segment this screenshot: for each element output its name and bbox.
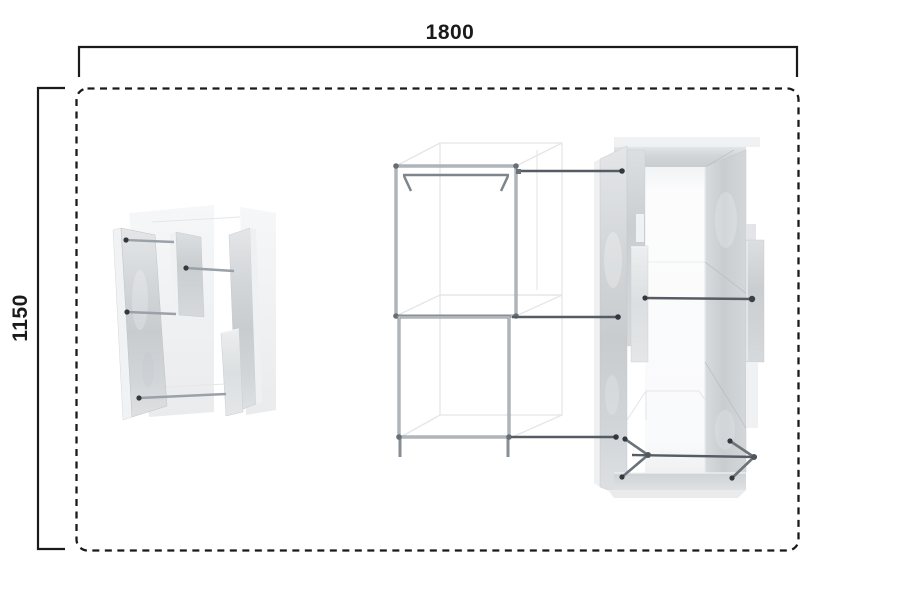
texture-highlight	[132, 270, 148, 330]
width-dimension-bracket	[79, 47, 797, 77]
texture-shade	[142, 352, 154, 388]
corner-panel-unit	[113, 205, 276, 420]
width-dimension-label: 1800	[426, 21, 475, 44]
height-dimension-bracket	[38, 88, 65, 549]
texture-highlight	[715, 410, 735, 450]
texture-highlight	[605, 375, 619, 415]
texture-highlight	[604, 232, 622, 288]
bottom-panel-front	[608, 490, 746, 498]
clothes-rack-frame	[393, 143, 625, 457]
rail-brace	[501, 176, 508, 191]
side-step	[746, 240, 764, 362]
plan-drawing-svg: 1800 1150	[0, 0, 900, 600]
height-dimension: 1150	[9, 88, 65, 549]
left-side-panel	[600, 146, 627, 497]
height-dimension-label: 1150	[9, 294, 32, 342]
texture-highlight	[715, 192, 737, 248]
partition-recess	[636, 214, 644, 242]
technical-drawing: 1800 1150	[0, 0, 900, 600]
wardrobe-interior	[645, 167, 705, 473]
ghost-wireframe	[396, 143, 562, 438]
concrete-panel	[176, 232, 204, 317]
rail-brace	[404, 176, 411, 191]
concrete-panel	[221, 329, 243, 416]
width-dimension: 1800	[79, 21, 797, 77]
side-step	[746, 362, 758, 428]
bottom-panel	[614, 473, 746, 490]
lower-frame	[396, 317, 512, 457]
inner-partition	[631, 246, 648, 362]
